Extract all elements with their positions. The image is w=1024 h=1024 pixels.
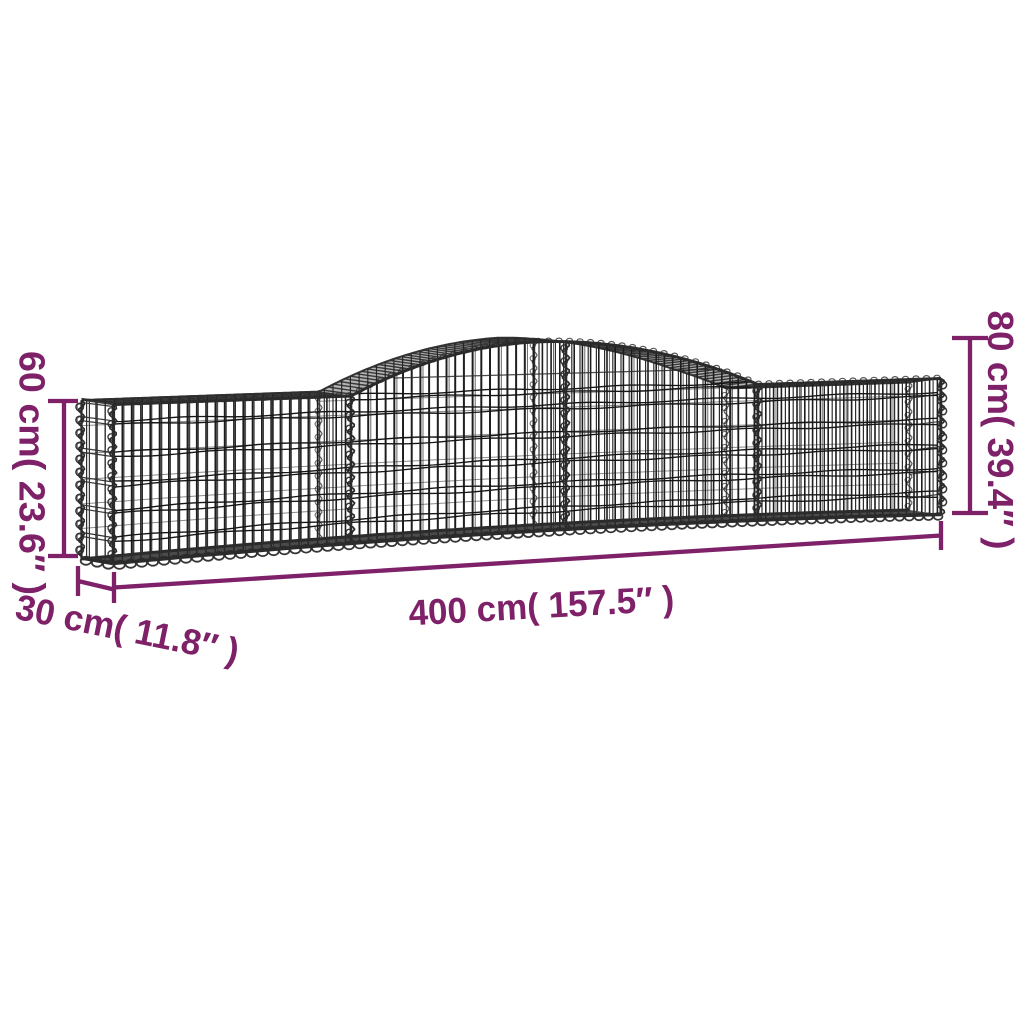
svg-text:60 cm( 23.6″ ): 60 cm( 23.6″ ) xyxy=(12,351,53,595)
svg-text:80 cm( 39.4″ ): 80 cm( 39.4″ ) xyxy=(980,311,1021,550)
